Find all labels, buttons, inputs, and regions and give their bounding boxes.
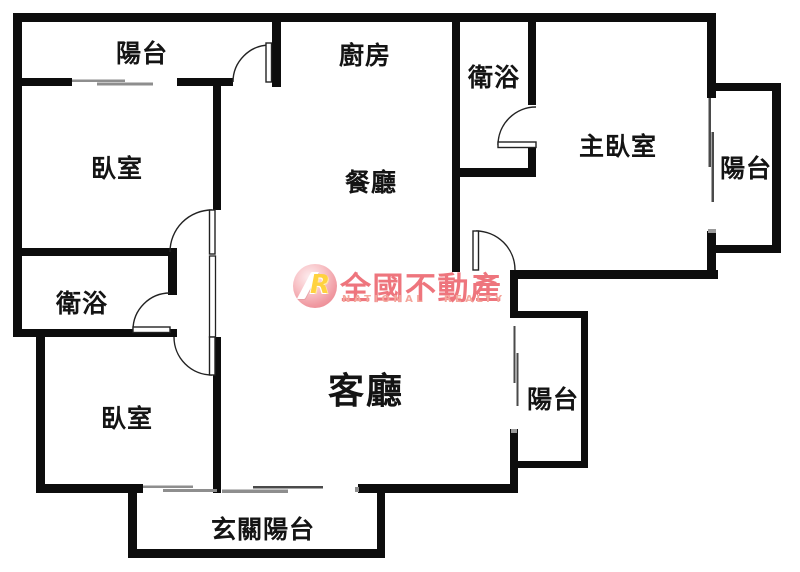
wall-bathroom2-east (168, 248, 177, 295)
door-arc (233, 45, 270, 82)
wall-balcony-right-south (716, 245, 781, 253)
wall-kitchen-bath-divider (452, 22, 460, 272)
window-balcony-br-b (517, 353, 519, 406)
window-master-a (709, 98, 712, 167)
wall-master-east-upper (707, 13, 716, 98)
door-bathroom2 (133, 293, 170, 333)
wall-bathroom1-south (452, 168, 536, 177)
door-balcony-kitchen (233, 43, 272, 82)
wall-kitchen-column (272, 13, 281, 87)
label-kitchen: 廚房 (339, 36, 391, 72)
door-master-bedroom (473, 231, 515, 270)
door-bedroom2 (174, 337, 215, 375)
label-balcony-bottom-right: 陽台 (527, 380, 579, 416)
wall-entry-balcony-west (128, 493, 137, 558)
wall-living-south (358, 484, 518, 493)
walls (13, 13, 781, 558)
window-living-cap (355, 487, 359, 492)
door-leaf (498, 142, 536, 148)
label-living: 客廳 (328, 362, 404, 414)
wall-bathroom1-east-upper (528, 22, 536, 105)
label-bathroom-left: 衛浴 (56, 284, 108, 320)
partition-hall-frame (210, 256, 216, 337)
wall-balcony-divider-west (13, 78, 72, 86)
door-leaf (210, 337, 216, 375)
wall-entry-balcony-east (377, 493, 385, 553)
floorplan-drawing (0, 0, 800, 572)
wall-balcony-br-south (510, 461, 588, 468)
window-balcony-br-a (514, 326, 516, 383)
door-arc (174, 337, 212, 375)
window-master-b (712, 132, 715, 202)
wall-top (13, 13, 716, 22)
wall-entry-balcony-south (128, 549, 385, 558)
door-arc (133, 293, 170, 330)
wall-master-south (515, 270, 718, 279)
wall-bedroom1-south (13, 248, 170, 256)
label-dining: 餐廳 (345, 163, 397, 199)
window-bedroom2-b (163, 489, 217, 492)
label-bedroom-top-left: 臥室 (91, 149, 143, 185)
wall-balcony-divider-east (177, 78, 233, 86)
wall-balcony-br-west-lower (510, 429, 518, 493)
window-balcony-top-a (72, 80, 125, 83)
wall-balcony-br-connector (510, 270, 518, 318)
label-balcony-right: 陽台 (720, 149, 772, 185)
door-leaf (133, 327, 170, 333)
door-arc (498, 107, 536, 145)
floorplan-page: 陽台 廚房 衛浴 主臥室 陽台 臥室 餐廳 衛浴 臥室 客廳 陽台 玄關陽台 R… (0, 0, 800, 572)
label-entry-balcony: 玄關陽台 (211, 510, 315, 546)
wall-bedroom2-south (36, 484, 143, 493)
wall-master-east-lower (707, 231, 716, 279)
wall-left (13, 13, 22, 337)
window-balcony-br-cap (511, 429, 517, 433)
window-living-b (222, 490, 288, 494)
door-leaf (473, 231, 479, 270)
door-bathroom1 (498, 107, 536, 148)
wall-bedroom1-east (213, 78, 221, 210)
wall-bedroom2-west (36, 337, 45, 493)
window-master-cap (708, 229, 716, 233)
label-master-bedroom: 主臥室 (579, 127, 657, 163)
door-arc (476, 231, 515, 270)
door-leaf (210, 210, 216, 254)
wall-balcony-right-east (772, 83, 781, 253)
window-bedroom2-a (143, 486, 193, 489)
wall-balcony-br-top (510, 311, 588, 318)
door-arc (170, 210, 212, 252)
wall-balcony-br-east (581, 311, 588, 468)
door-leaf (266, 43, 272, 82)
label-bedroom-bottom-left: 臥室 (101, 399, 153, 435)
window-balcony-top-b (97, 83, 153, 86)
door-bedroom1 (170, 210, 215, 254)
label-bathroom-top: 衛浴 (468, 58, 520, 94)
window-living-a (253, 486, 323, 489)
wall-balcony-right-top (716, 83, 781, 91)
label-balcony-top: 陽台 (116, 34, 168, 70)
